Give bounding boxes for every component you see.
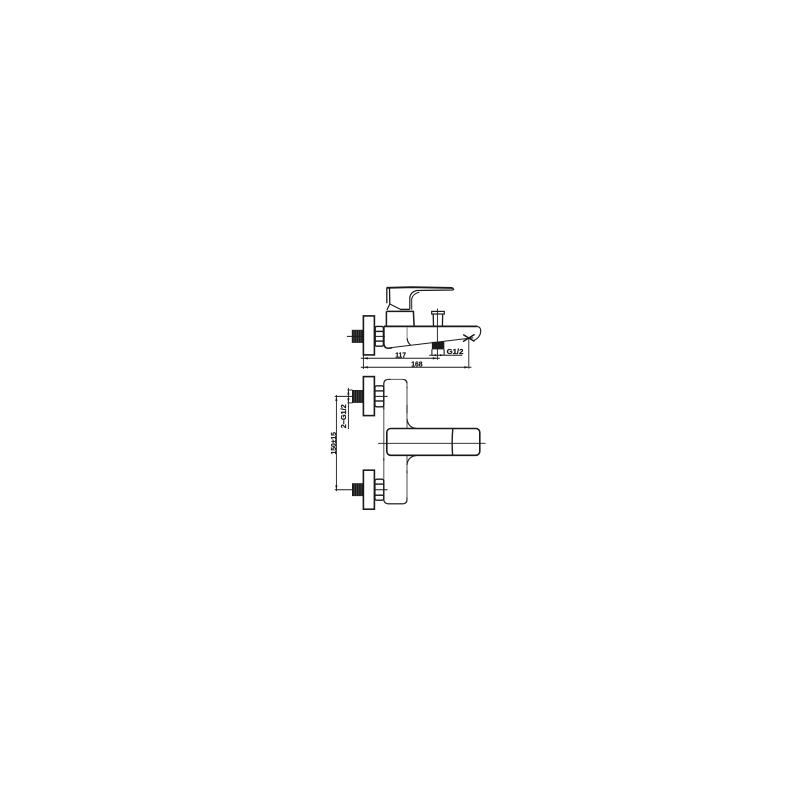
- svg-text:2–G1/2: 2–G1/2: [340, 404, 348, 428]
- svg-text:168: 168: [411, 361, 422, 369]
- svg-text:150±15: 150±15: [330, 432, 338, 455]
- svg-text:117: 117: [395, 351, 406, 359]
- svg-text:G1/2: G1/2: [447, 348, 464, 356]
